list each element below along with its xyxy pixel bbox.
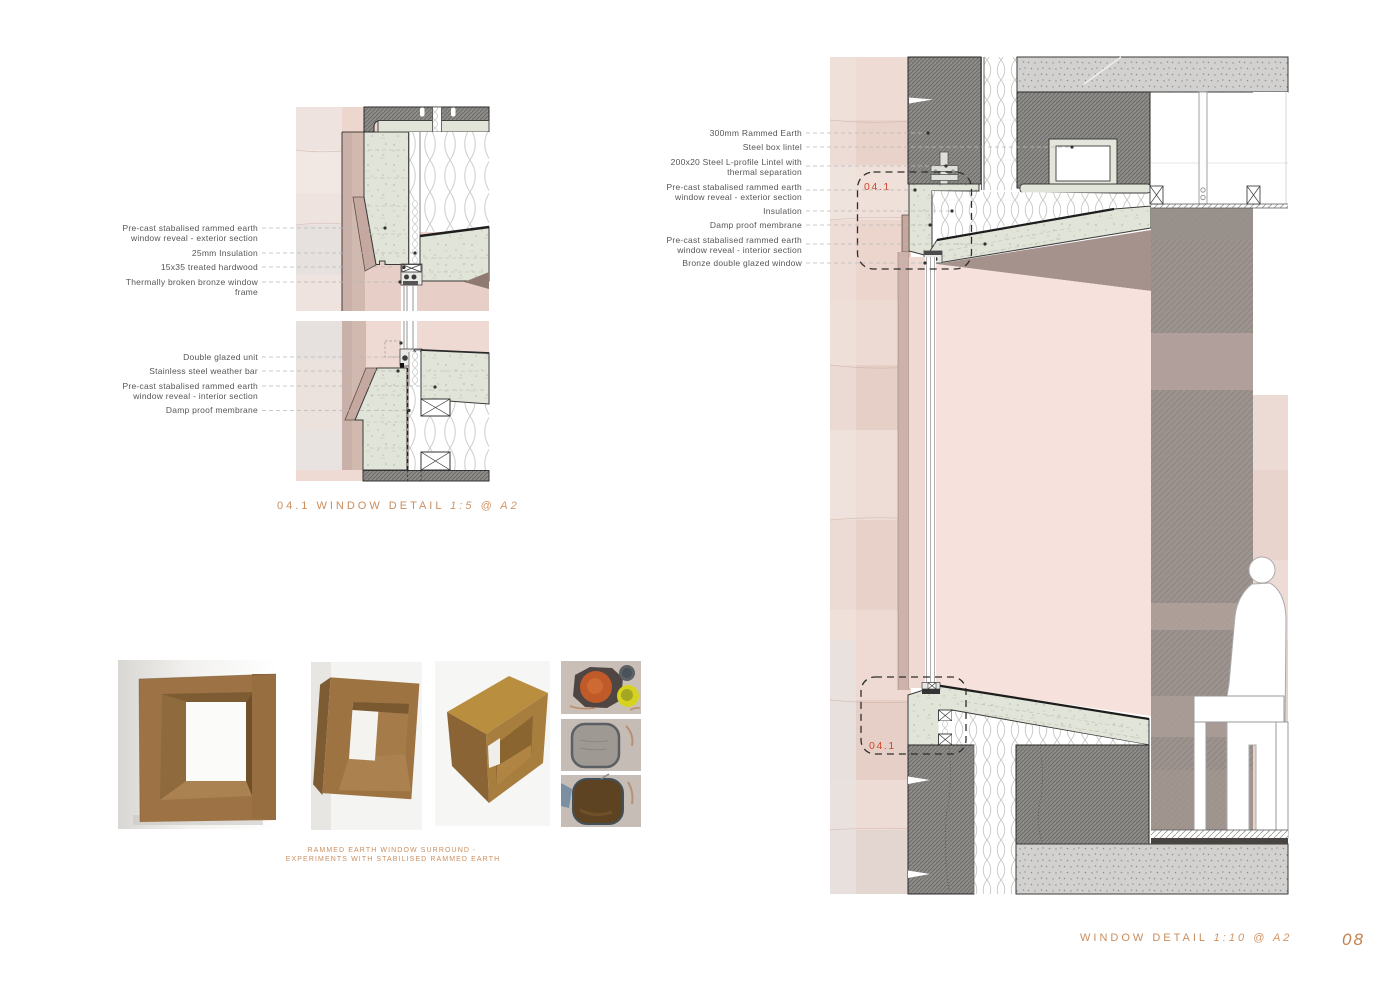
- svg-text:04.1: 04.1: [869, 740, 896, 752]
- svg-text:Bronze double glazed window: Bronze double glazed window: [682, 258, 802, 268]
- svg-text:thermal separation: thermal separation: [727, 167, 802, 177]
- svg-text:25mm Insulation: 25mm Insulation: [192, 248, 258, 258]
- svg-text:frame: frame: [235, 287, 258, 297]
- svg-text:window reveal - exterior secti: window reveal - exterior section: [130, 233, 258, 243]
- svg-text:Thermally broken bronze window: Thermally broken bronze window: [126, 277, 259, 287]
- svg-text:08: 08: [1342, 930, 1365, 949]
- svg-text:04.1: 04.1: [864, 181, 891, 193]
- svg-text:window reveal - interior secti: window reveal - interior section: [676, 245, 802, 255]
- svg-text:Pre-cast stabalised rammed ear: Pre-cast stabalised rammed earth: [666, 182, 802, 192]
- svg-text:Pre-cast stabalised rammed ear: Pre-cast stabalised rammed earth: [122, 381, 258, 391]
- svg-text:300mm Rammed Earth: 300mm Rammed Earth: [710, 128, 802, 138]
- svg-text:Double glazed unit: Double glazed unit: [183, 352, 258, 362]
- svg-text:RAMMED EARTH WINDOW SURROUND -: RAMMED EARTH WINDOW SURROUND -: [308, 847, 477, 854]
- svg-text:WINDOW DETAIL 1:10 @ A2: WINDOW DETAIL 1:10 @ A2: [1080, 932, 1292, 944]
- svg-text:200x20 Steel L-profile Lintel: 200x20 Steel L-profile Lintel with: [671, 157, 802, 167]
- svg-text:Damp proof membrane: Damp proof membrane: [166, 405, 258, 415]
- svg-text:Damp proof membrane: Damp proof membrane: [710, 220, 802, 230]
- svg-text:Steel box lintel: Steel box lintel: [743, 142, 802, 152]
- svg-text:window reveal - interior secti: window reveal - interior section: [132, 391, 258, 401]
- svg-text:EXPERIMENTS WITH STABILISED RA: EXPERIMENTS WITH STABILISED RAMMED EARTH: [286, 856, 501, 863]
- svg-text:15x35 treated hardwood: 15x35 treated hardwood: [161, 262, 258, 272]
- svg-text:Pre-cast stabalised rammed ear: Pre-cast stabalised rammed earth: [122, 223, 258, 233]
- svg-text:04.1 WINDOW DETAIL 1:5 @ A2: 04.1 WINDOW DETAIL 1:5 @ A2: [277, 500, 520, 512]
- svg-text:Pre-cast stabalised rammed ear: Pre-cast stabalised rammed earth: [666, 235, 802, 245]
- svg-text:Insulation: Insulation: [763, 206, 802, 216]
- svg-text:Stainless steel weather bar: Stainless steel weather bar: [149, 366, 258, 376]
- svg-text:window reveal - exterior secti: window reveal - exterior section: [674, 192, 802, 202]
